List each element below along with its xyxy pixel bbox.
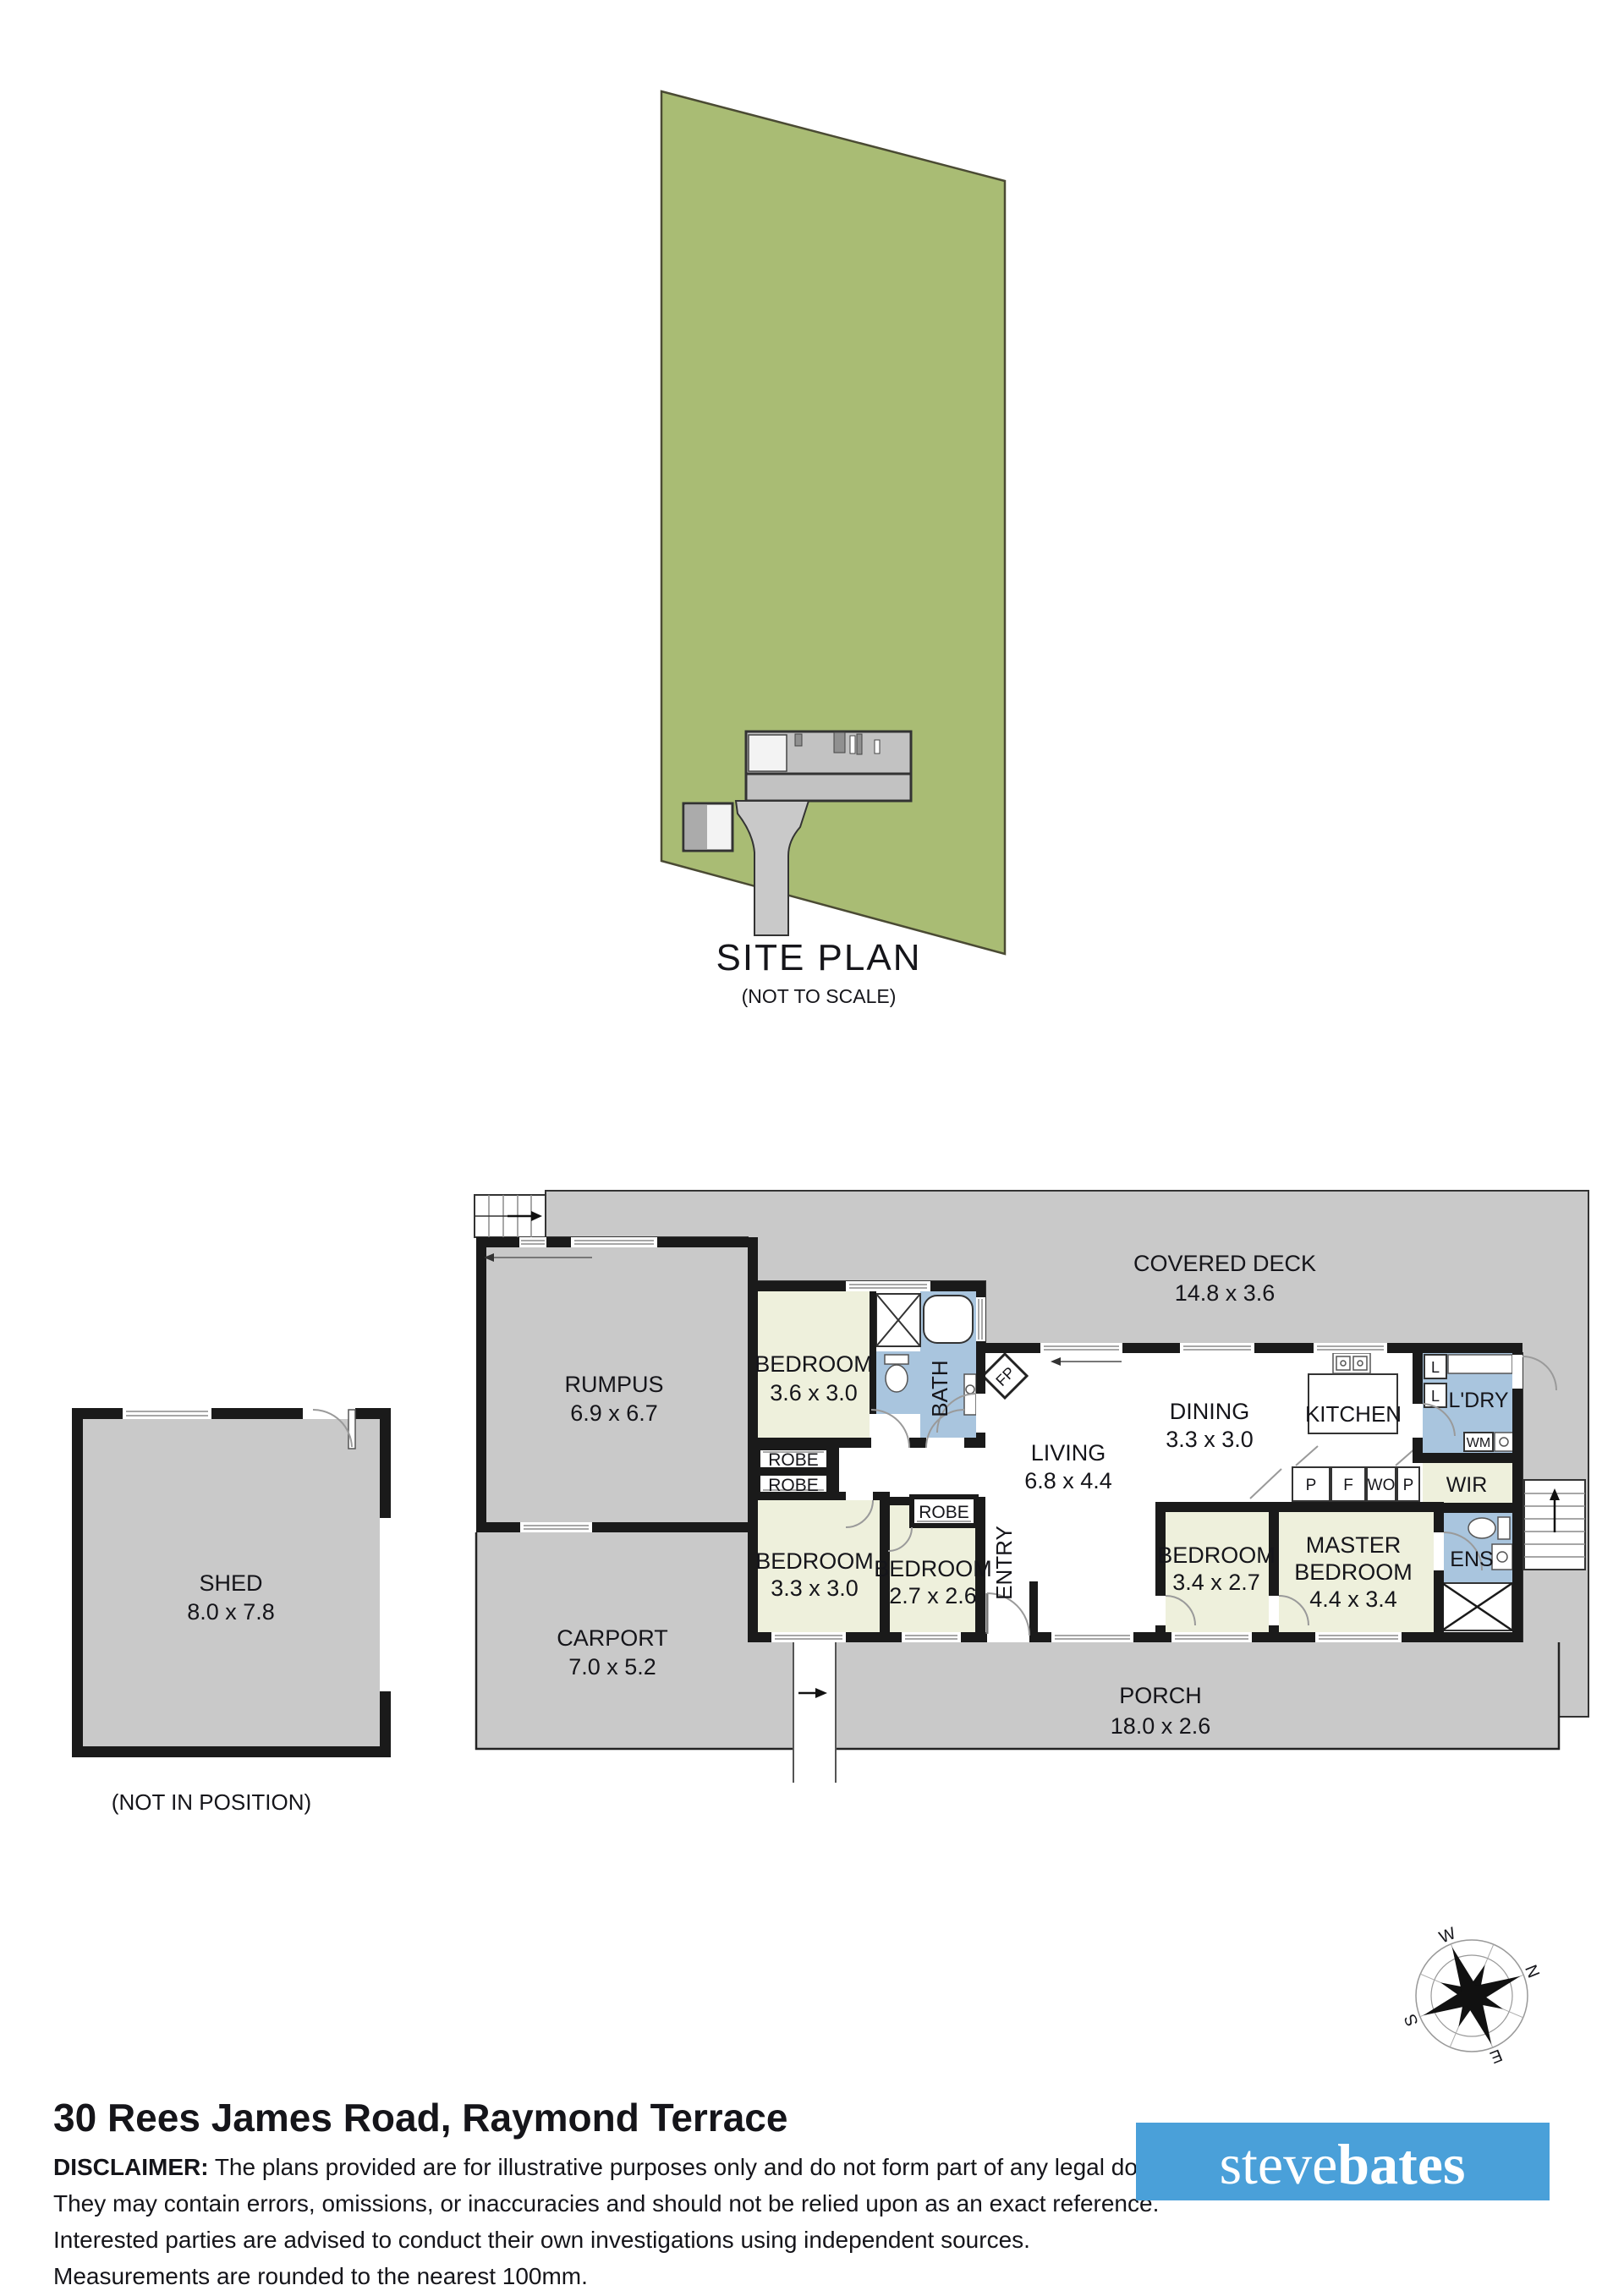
living-label: LIVING — [1031, 1440, 1106, 1466]
bedroom-1-label: BEDROOM — [754, 1351, 873, 1377]
covered-deck-label: COVERED DECK — [1133, 1251, 1316, 1276]
floor-plan: RUMPUS 6.9 x 6.7 BEDROOM 3.6 x 3.0 BATH … — [72, 1191, 1588, 1815]
pantry-2-label: P — [1403, 1477, 1414, 1494]
robe-1-label: ROBE — [768, 1450, 819, 1470]
compass-w-label: W — [1436, 1924, 1458, 1948]
toilet-icon — [885, 1355, 908, 1392]
porch-dims: 18.0 x 2.6 — [1111, 1713, 1211, 1739]
footer: 30 Rees James Road, Raymond Terrace DISC… — [53, 2096, 1550, 2289]
site-roof-detail — [834, 732, 845, 753]
disclaimer-rest: The plans provided are for illustrative … — [209, 2154, 1293, 2180]
bedroom-1-dims: 3.6 x 3.0 — [770, 1380, 858, 1406]
bathtub-icon — [924, 1296, 973, 1343]
dining-dims: 3.3 x 3.0 — [1166, 1427, 1254, 1452]
entry-label: ENTRY — [991, 1526, 1017, 1600]
wall-oven-label: WO — [1368, 1477, 1396, 1494]
site-roof-detail — [857, 734, 862, 754]
washing-machine-label: WM — [1467, 1436, 1490, 1450]
porch-walkway — [793, 1642, 836, 1783]
site-outbuilding-half — [685, 805, 707, 849]
carport-label: CARPORT — [557, 1625, 668, 1651]
porch-label: PORCH — [1119, 1683, 1202, 1708]
disclaimer-line-4: Measurements are rounded to the nearest … — [53, 2263, 588, 2289]
disclaimer-label: DISCLAIMER: — [53, 2154, 209, 2180]
master-bedroom-label-2: BEDROOM — [1294, 1559, 1413, 1585]
compass-s-label: S — [1401, 2011, 1422, 2029]
ens-label: ENS — [1450, 1548, 1493, 1571]
compass-rose-icon: N E S W — [1401, 1924, 1543, 2067]
covered-deck-dims: 14.8 x 3.6 — [1175, 1280, 1276, 1306]
disclaimer-line-3: Interested parties are advised to conduc… — [53, 2227, 1030, 2253]
bath-label: BATH — [927, 1360, 952, 1417]
stevebates-logo: stevebates — [1136, 2123, 1550, 2200]
site-plan-scale-note: (NOT TO SCALE) — [742, 985, 897, 1007]
logo-text-second: bates — [1337, 2132, 1465, 2196]
robe-2-label: ROBE — [768, 1476, 819, 1495]
site-roof-detail — [850, 736, 855, 753]
shed-note: (NOT IN POSITION) — [112, 1789, 311, 1815]
floorplan-page: SITE PLAN (NOT TO SCALE) — [0, 0, 1624, 2296]
site-house-deck — [749, 735, 787, 771]
bedroom-2-dims: 3.3 x 3.0 — [771, 1575, 859, 1601]
bedroom-4-dims: 3.4 x 2.7 — [1172, 1570, 1260, 1595]
dining-label: DINING — [1170, 1399, 1250, 1424]
kitchen-label: KITCHEN — [1305, 1401, 1402, 1427]
disclaimer-line-2: They may contain errors, omissions, or i… — [53, 2190, 1159, 2217]
bedroom-3-dims: 2.7 x 2.6 — [889, 1583, 977, 1608]
compass-e-label: E — [1487, 2045, 1505, 2066]
disclaimer-line-1: DISCLAIMER: The plans provided are for i… — [53, 2154, 1293, 2180]
site-plan-title: SITE PLAN — [716, 937, 922, 978]
robe-3-label: ROBE — [919, 1503, 969, 1522]
carport-dims: 7.0 x 5.2 — [568, 1654, 656, 1680]
logo-text-first: steve — [1220, 2132, 1338, 2196]
site-porch-strip — [746, 774, 911, 801]
bedroom-2-label: BEDROOM — [755, 1548, 874, 1574]
laundry-label: L'DRY — [1448, 1389, 1508, 1412]
rumpus-dims: 6.9 x 6.7 — [570, 1400, 658, 1426]
pantry-1-label: P — [1306, 1477, 1317, 1494]
bedroom-4-label: BEDROOM — [1157, 1543, 1276, 1568]
stairs-top-left — [475, 1195, 546, 1237]
shed-label: SHED — [199, 1570, 262, 1596]
master-bedroom-dims: 4.4 x 3.4 — [1309, 1586, 1397, 1612]
site-roof-detail — [875, 740, 880, 753]
bedroom-3-label: BEDROOM — [874, 1556, 992, 1581]
rumpus-label: RUMPUS — [564, 1372, 663, 1397]
shower-icon — [876, 1294, 920, 1346]
logo-text: stevebates — [1220, 2132, 1466, 2196]
linen-xbox-icon — [1442, 1583, 1512, 1630]
fridge-label: F — [1343, 1477, 1353, 1494]
stairs-right — [1524, 1480, 1585, 1570]
site-plan: SITE PLAN (NOT TO SCALE) — [661, 91, 1005, 1007]
shed-dims: 8.0 x 7.8 — [187, 1599, 275, 1625]
address-title: 30 Rees James Road, Raymond Terrace — [53, 2096, 787, 2140]
master-bedroom-label-1: MASTER — [1306, 1532, 1402, 1558]
living-dims: 6.8 x 4.4 — [1024, 1468, 1112, 1493]
wir-label: WIR — [1446, 1473, 1488, 1497]
linen-2-label: L — [1431, 1388, 1440, 1405]
site-roof-detail — [795, 734, 802, 746]
linen-1-label: L — [1431, 1359, 1440, 1376]
